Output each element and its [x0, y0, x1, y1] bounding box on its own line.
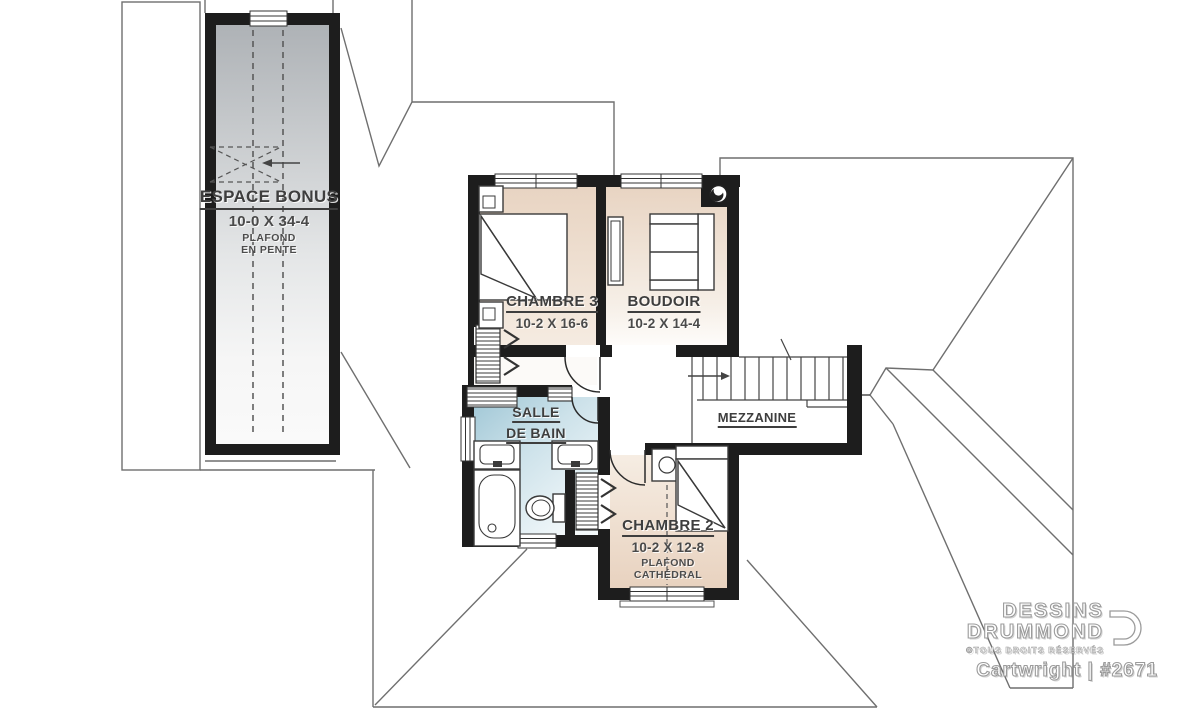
closet-icon-chambre2: [576, 473, 598, 530]
room-dimensions: 10-2 X 14-4: [628, 316, 701, 331]
window-icon-bonus: [250, 11, 287, 26]
plan-separator: |: [1088, 660, 1094, 681]
drummond-d-icon: [1104, 605, 1152, 651]
closet-icon-chambre3: [476, 325, 500, 383]
toilet-icon: [526, 494, 565, 522]
room-dimensions: 10-2 X 16-6: [506, 316, 598, 331]
room-label-mezzanine: MEZZANINE: [718, 409, 797, 428]
bed-icon-chambre3: [479, 214, 567, 300]
room-note: PLAFOND: [622, 557, 714, 569]
plan-title: Cartwright | #2671: [966, 660, 1158, 682]
room-dimensions: 10-2 X 12-8: [622, 540, 714, 555]
nightstand-icon: [479, 186, 503, 212]
room-label-espace-bonus: ESPACE BONUS 10-0 X 34-4 PLAFOND EN PENT…: [200, 187, 338, 256]
brand-logo: DESSINS DRUMMOND ©TOUS DROITS RÉSERVÉS C…: [966, 601, 1158, 682]
plan-number: #2671: [1100, 660, 1158, 681]
hallway-floor-2: [608, 345, 676, 443]
room-label-chambre-3: CHAMBRE 3 10-2 X 16-6: [506, 293, 598, 331]
room-name: DE BAIN: [506, 425, 566, 444]
nightstand-icon: [479, 302, 503, 328]
window-icon-chambre2: [620, 587, 714, 607]
window-icon-chambre3: [495, 174, 577, 188]
room-name: BOUDOIR: [628, 293, 701, 313]
bookshelf-icon: [608, 217, 623, 285]
window-icon-boudoir: [621, 174, 702, 188]
room-name: CHAMBRE 2: [622, 517, 714, 537]
room-label-salle-de-bain: SALLE DE BAIN: [506, 402, 566, 444]
room-note: CATHÉDRAL: [622, 569, 714, 581]
room-note: PLAFOND: [200, 232, 338, 244]
sink-vanity-icon: [552, 441, 598, 469]
plan-name: Cartwright: [976, 660, 1081, 681]
room-name: CHAMBRE 3: [506, 293, 598, 313]
window-icon-bath-bottom: [518, 534, 556, 548]
bathtub-icon: [474, 470, 520, 546]
room-name: ESPACE BONUS: [200, 187, 338, 210]
sofa-icon: [650, 214, 714, 290]
room-name: MEZZANINE: [718, 410, 797, 428]
room-dimensions: 10-0 X 34-4: [200, 213, 338, 230]
chimney-icon: [710, 186, 727, 203]
sink-vanity-icon: [474, 441, 520, 469]
linen-shelf-icon: [548, 387, 572, 401]
floor-plan-page: ESPACE BONUS 10-0 X 34-4 PLAFOND EN PENT…: [0, 0, 1200, 711]
window-icon-bath-left: [461, 417, 475, 461]
room-note: EN PENTE: [200, 244, 338, 256]
room-label-boudoir: BOUDOIR 10-2 X 14-4: [628, 293, 701, 331]
room-label-chambre-2: CHAMBRE 2 10-2 X 12-8 PLAFOND CATHÉDRAL: [622, 517, 714, 581]
room-name: SALLE: [512, 404, 559, 423]
